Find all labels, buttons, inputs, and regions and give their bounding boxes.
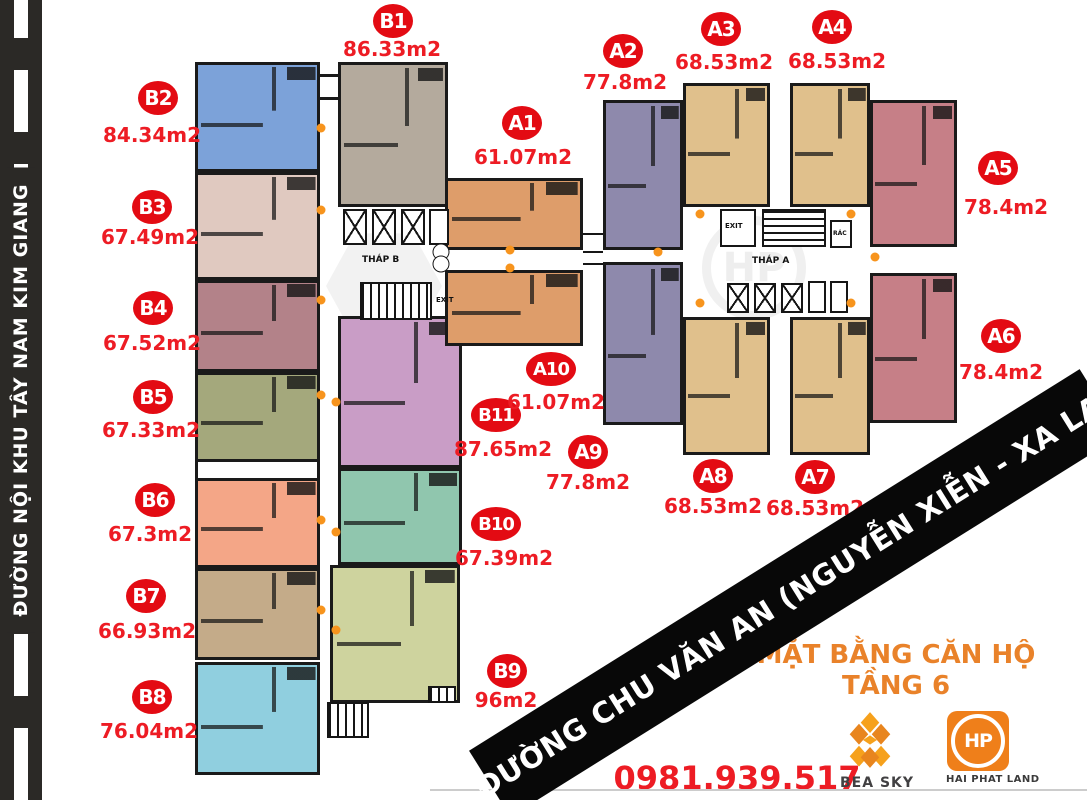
door-marker <box>871 253 880 262</box>
unit-B4 <box>195 280 320 372</box>
door-marker <box>317 206 326 215</box>
badge-B10: B10 <box>471 507 521 541</box>
tower-a-elevator-1 <box>727 283 749 313</box>
door-marker <box>847 299 856 308</box>
bea-sky-name: BEA SKY <box>840 775 900 791</box>
door-marker <box>317 296 326 305</box>
corridor-line <box>583 251 603 253</box>
area-label-B8: 76.04m2 <box>100 719 198 743</box>
door-marker <box>654 248 663 257</box>
area-label-B10: 67.39m2 <box>455 546 553 570</box>
badge-B6: B6 <box>135 483 175 517</box>
corridor-line <box>583 263 603 265</box>
corridor-door-arc <box>433 256 450 273</box>
unit-A7 <box>790 317 870 455</box>
tower-a-elevator-3 <box>781 283 803 313</box>
door-marker <box>317 391 326 400</box>
tower-b-elevator-2 <box>372 209 396 245</box>
contact-phone: 0981.939.517 <box>614 759 861 797</box>
door-marker <box>332 626 341 635</box>
area-label-A8: 68.53m2 <box>664 494 762 518</box>
badge-B7: B7 <box>126 579 166 613</box>
tower-b-staircase <box>360 282 432 320</box>
poster-title: MẶT BẰNG CĂN HỘ TẦNG 6 <box>746 640 1046 702</box>
tower-a-core-room-1 <box>808 281 826 313</box>
badge-B3: B3 <box>132 190 172 224</box>
unit-B7 <box>195 568 320 660</box>
area-label-B1: 86.33m2 <box>343 37 441 61</box>
badge-A1: A1 <box>502 106 542 140</box>
badge-A4: A4 <box>812 10 852 44</box>
unit-B2 <box>195 62 320 172</box>
lightwell-wall <box>195 462 198 478</box>
area-label-A1: 61.07m2 <box>474 145 572 169</box>
bea-sky-logo: BEA SKY <box>840 711 900 791</box>
door-marker <box>332 398 341 407</box>
door-marker <box>696 210 705 219</box>
unit-B5 <box>195 372 320 462</box>
unit-A5 <box>870 100 957 247</box>
badge-B2: B2 <box>138 81 178 115</box>
badge-B4: B4 <box>133 291 173 325</box>
door-marker <box>506 246 515 255</box>
area-label-B9: 96m2 <box>475 688 538 712</box>
area-label-A4: 68.53m2 <box>788 49 886 73</box>
badge-A10: A10 <box>526 352 576 386</box>
tower-b-label: THÁP B <box>362 255 399 265</box>
tower-a-label: THÁP A <box>752 256 789 266</box>
ground-staircase <box>327 702 369 738</box>
hai-phat-land-icon: HP <box>947 711 1009 771</box>
door-marker <box>332 528 341 537</box>
badge-A6: A6 <box>981 319 1021 353</box>
tower-a-exit-label: EXIT <box>725 222 743 230</box>
tower-b-elevator-3 <box>401 209 425 245</box>
area-label-A2: 77.8m2 <box>583 70 667 94</box>
area-label-B11: 87.65m2 <box>454 437 552 461</box>
unit-B8 <box>195 662 320 775</box>
door-marker <box>317 516 326 525</box>
hp-monogram: HP <box>951 714 1005 768</box>
area-label-B2: 84.34m2 <box>103 123 201 147</box>
corridor-line <box>583 233 603 235</box>
badge-A2: A2 <box>603 34 643 68</box>
tower-b-elevator-1 <box>343 209 367 245</box>
hai-phat-land-name: HAI PHAT LAND <box>946 774 1010 785</box>
unit-B10 <box>338 468 462 565</box>
poster-title-line1: MẶT BẰNG CĂN HỘ <box>746 640 1046 671</box>
b9-staircase <box>428 686 456 703</box>
tower-b-bridge <box>320 74 338 100</box>
area-label-B7: 66.93m2 <box>98 619 196 643</box>
unit-A1 <box>445 178 583 250</box>
unit-B11 <box>338 316 462 468</box>
tower-a-trash-label: RÁC <box>833 230 847 237</box>
unit-A10 <box>445 270 583 346</box>
road-left-name: ĐƯỜNG NỘI KHU TÂY NAM KIM GIANG <box>7 168 35 633</box>
badge-B1: B1 <box>373 4 413 38</box>
badge-A3: A3 <box>701 12 741 46</box>
door-marker <box>847 210 856 219</box>
unit-B1 <box>338 62 448 207</box>
door-marker <box>317 606 326 615</box>
badge-B5: B5 <box>133 380 173 414</box>
hai-phat-land-logo: HP HAI PHAT LAND <box>946 711 1010 785</box>
door-marker <box>317 124 326 133</box>
area-label-B3: 67.49m2 <box>101 225 199 249</box>
badge-A8: A8 <box>693 459 733 493</box>
tower-a-core-room-2 <box>830 281 848 313</box>
door-marker <box>696 299 705 308</box>
road-left-bar: ĐƯỜNG NỘI KHU TÂY NAM KIM GIANG <box>0 0 42 800</box>
unit-B3 <box>195 172 320 280</box>
unit-A8 <box>683 317 770 455</box>
unit-A6 <box>870 273 957 423</box>
area-label-A10: 61.07m2 <box>507 390 605 414</box>
area-label-B5: 67.33m2 <box>102 418 200 442</box>
badge-B9: B9 <box>487 654 527 688</box>
poster-title-line2: TẦNG 6 <box>746 671 1046 702</box>
area-label-B4: 67.52m2 <box>103 331 201 355</box>
tower-a-elevator-2 <box>754 283 776 313</box>
area-label-A3: 68.53m2 <box>675 50 773 74</box>
area-label-B6: 67.3m2 <box>108 522 192 546</box>
bea-sky-hex-icon <box>841 711 899 769</box>
unit-A3 <box>683 83 770 207</box>
badge-B8: B8 <box>132 680 172 714</box>
unit-A9 <box>603 262 683 425</box>
unit-A4 <box>790 83 870 207</box>
tower-b-trash-room <box>429 209 449 245</box>
floorplan-poster: ĐƯỜNG NỘI KHU TÂY NAM KIM GIANG HP B284.… <box>0 0 1087 800</box>
area-label-A9: 77.8m2 <box>546 470 630 494</box>
unit-A2 <box>603 100 683 250</box>
badge-A7: A7 <box>795 460 835 494</box>
unit-B9 <box>330 565 460 703</box>
badge-A9: A9 <box>568 435 608 469</box>
area-label-A5: 78.4m2 <box>964 195 1048 219</box>
area-label-A6: 78.4m2 <box>959 360 1043 384</box>
unit-B6 <box>195 478 320 568</box>
door-marker <box>506 264 515 273</box>
badge-A5: A5 <box>978 151 1018 185</box>
tower-b-exit-label: EXIT <box>436 296 454 304</box>
tower-a-staircase <box>762 209 826 247</box>
lightwell-wall <box>317 462 320 478</box>
